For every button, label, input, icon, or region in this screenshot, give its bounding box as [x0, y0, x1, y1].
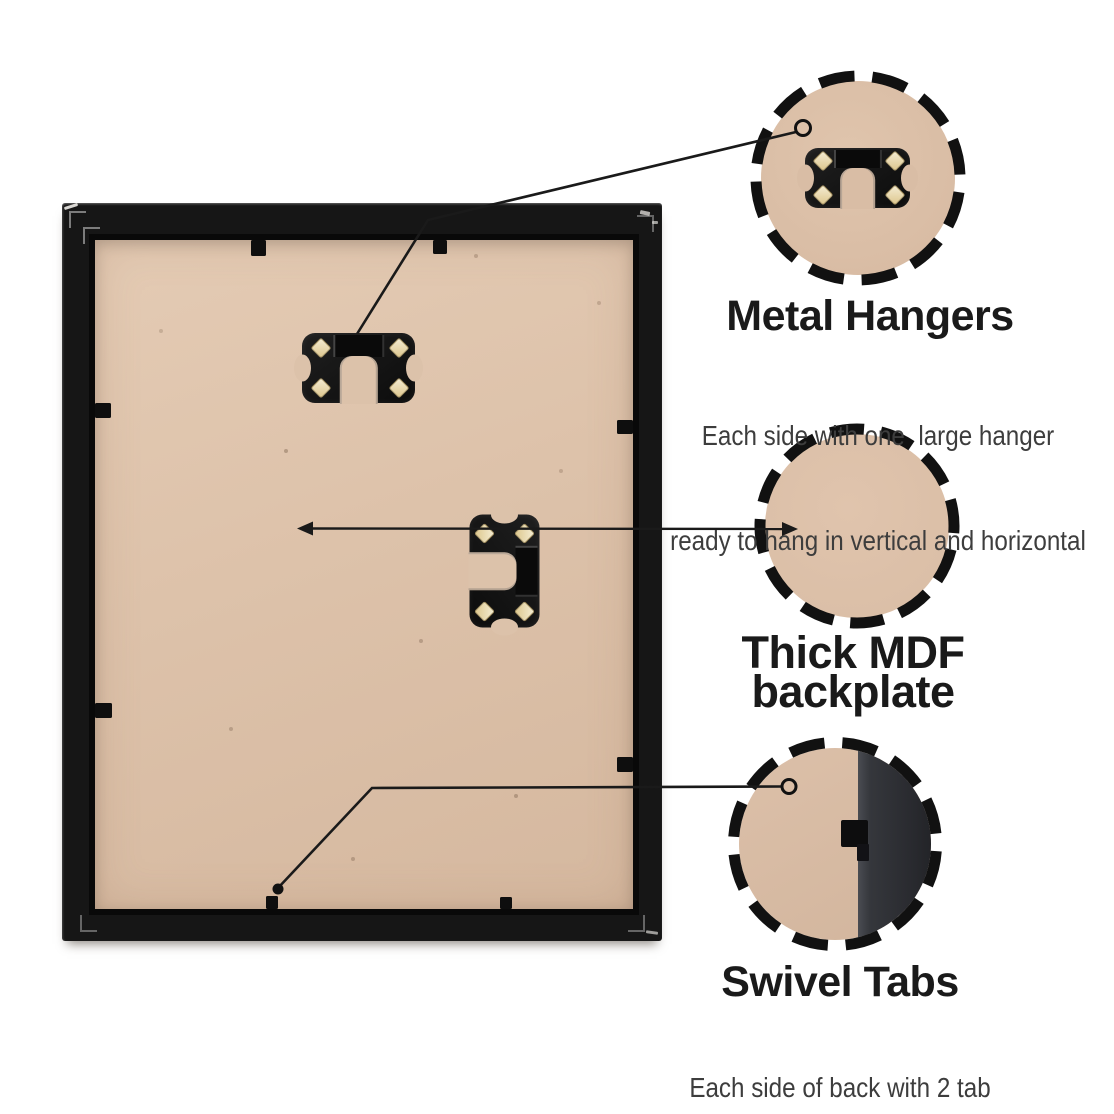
callout-title-swivel-tabs: Swivel Tabs — [590, 961, 1090, 1004]
hanger-side-notch — [491, 507, 518, 524]
corner-bracket-icon — [69, 211, 86, 228]
corner-bracket-icon — [83, 227, 100, 244]
swivel-tab-top-right — [433, 240, 447, 254]
hanger-side-notch — [491, 619, 518, 636]
hanger-side-notch — [901, 165, 918, 192]
hanger-channel — [333, 335, 384, 357]
callout-description-swivel-tabs: Each side of back with 2 tab Easily and … — [620, 1010, 1060, 1114]
hanger-side-notch — [406, 355, 423, 382]
metal-hanger-closeup — [805, 148, 910, 208]
metal-hanger-middle — [470, 515, 540, 628]
hanger-hook-slot — [339, 356, 377, 404]
description-line: Each side of back with 2 tab — [620, 1072, 1060, 1103]
description-line: ready to hang in vertical and horizontal — [658, 523, 1098, 558]
hanger-channel — [833, 150, 881, 169]
swivel-tab-right-upper — [617, 420, 633, 434]
corner-bracket-icon — [628, 915, 645, 932]
hanger-hook-slot — [840, 168, 876, 209]
callout-title-metal-hangers: Metal Hangers — [620, 295, 1114, 338]
swivel-tab-bottom-left — [266, 896, 278, 909]
swivel-tab-top-left — [251, 240, 266, 256]
swivel-tab-closeup-stem — [857, 844, 869, 861]
picture-frame-back — [62, 203, 662, 941]
swivel-tab-closeup — [841, 820, 868, 847]
swivel-tab-left-upper — [95, 403, 111, 418]
callout-description-metal-hangers: Each side with one large hanger ready to… — [658, 348, 1098, 628]
callout-title-mdf-line2: backplate — [653, 669, 1053, 714]
product-infographic: Metal Hangers Each side with one large h… — [0, 0, 1114, 1114]
hanger-channel — [516, 545, 538, 596]
callout-circle-swivel-tab — [739, 748, 931, 940]
hanger-side-notch — [294, 355, 311, 382]
hanger-side-notch — [797, 165, 814, 192]
description-line: Each side with one large hanger — [658, 418, 1098, 453]
backplate-speckles — [0, 0, 2, 2]
paint-scuff — [64, 203, 78, 210]
corner-bracket-icon — [80, 915, 97, 932]
swivel-tab-right-lower — [617, 757, 633, 772]
metal-hanger-top — [302, 333, 415, 403]
paint-scuff — [646, 930, 658, 935]
paint-scuff — [652, 221, 658, 224]
swivel-tab-bottom-right — [500, 897, 512, 909]
hanger-hook-slot — [469, 552, 517, 590]
swivel-tab-left-lower — [95, 703, 112, 718]
